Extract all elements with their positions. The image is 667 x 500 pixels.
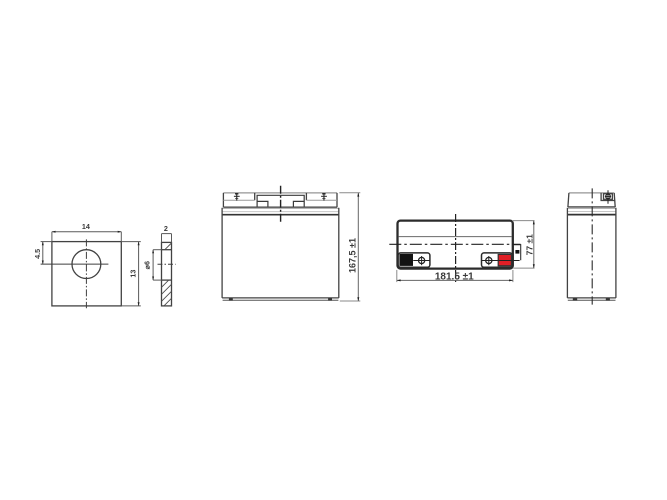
svg-text:4.5: 4.5	[33, 249, 42, 259]
svg-text:⌀6: ⌀6	[142, 261, 151, 269]
svg-text:77 ±1: 77 ±1	[524, 234, 534, 255]
svg-text:181.5 ±1: 181.5 ±1	[435, 272, 474, 283]
svg-text:14: 14	[82, 222, 90, 231]
svg-text:2: 2	[164, 224, 168, 233]
svg-text:13: 13	[128, 270, 137, 278]
svg-text:167,5 ±1: 167,5 ±1	[348, 238, 358, 273]
